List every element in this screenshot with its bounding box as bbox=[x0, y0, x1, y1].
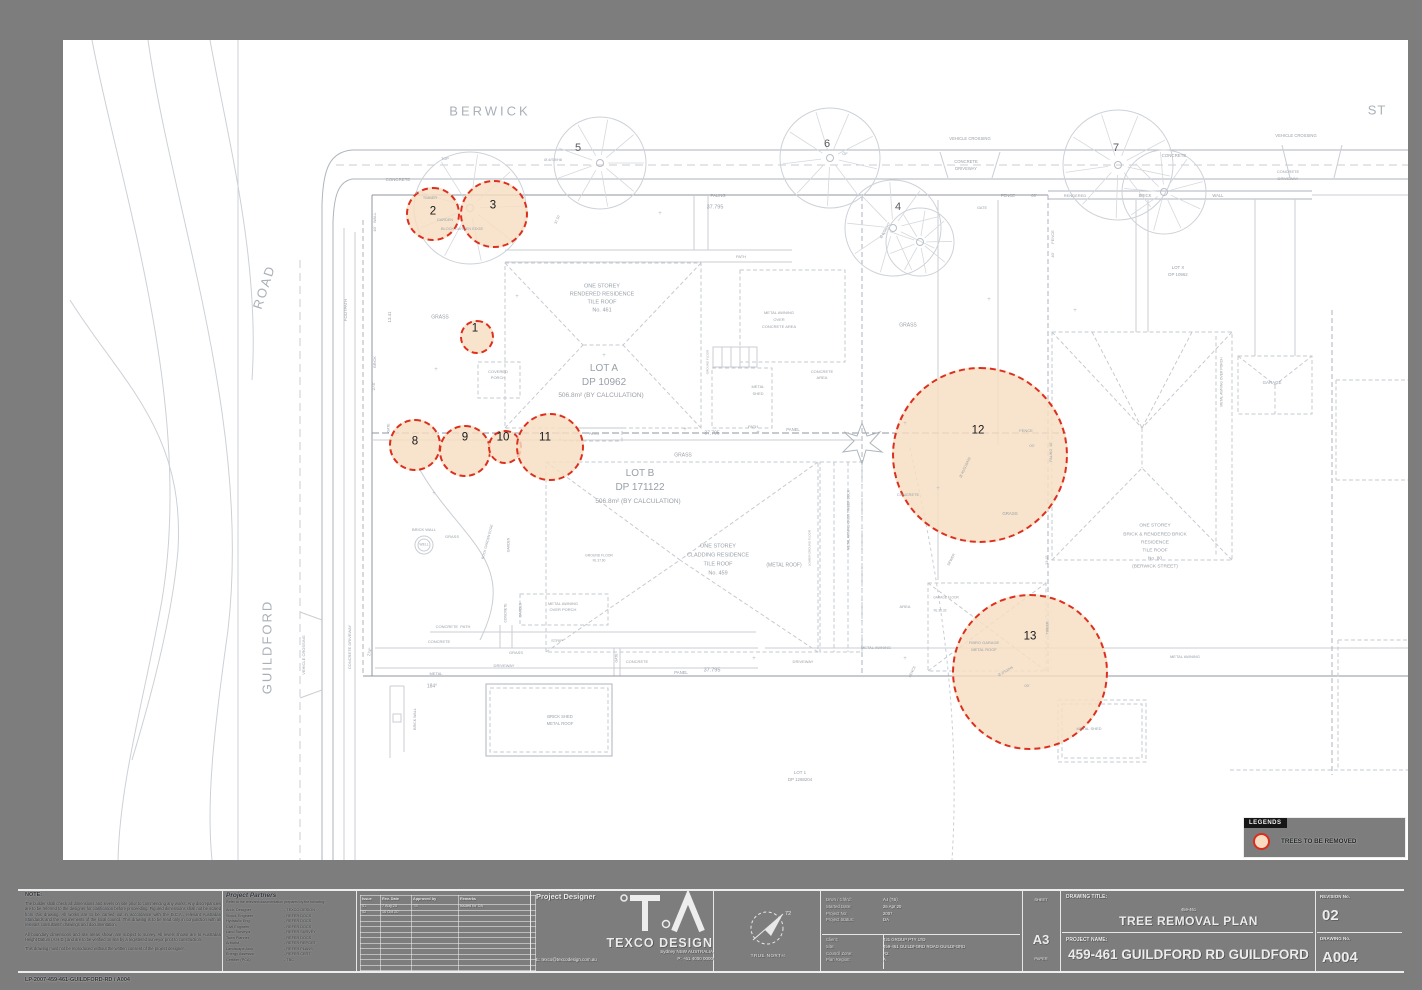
drawing-viewport[interactable]: 5647 1238910111213 BERWICKSTROADGUILDFOR… bbox=[0, 0, 1422, 990]
existing-tree-canopies: 5647 bbox=[414, 108, 1206, 276]
svg-text:5: 5 bbox=[575, 142, 581, 154]
plan-linework: 5647 bbox=[0, 0, 1422, 990]
legend-item-label: TREES TO BE REMOVED bbox=[1281, 839, 1356, 845]
legend: LEGENDS TREES TO BE REMOVED bbox=[1243, 817, 1406, 858]
svg-text:7: 7 bbox=[1113, 142, 1119, 154]
svg-text:6: 6 bbox=[824, 138, 830, 150]
svg-text:4: 4 bbox=[895, 201, 901, 213]
legend-title: LEGENDS bbox=[1244, 818, 1287, 828]
tree-removal-legend-icon bbox=[1253, 833, 1270, 850]
